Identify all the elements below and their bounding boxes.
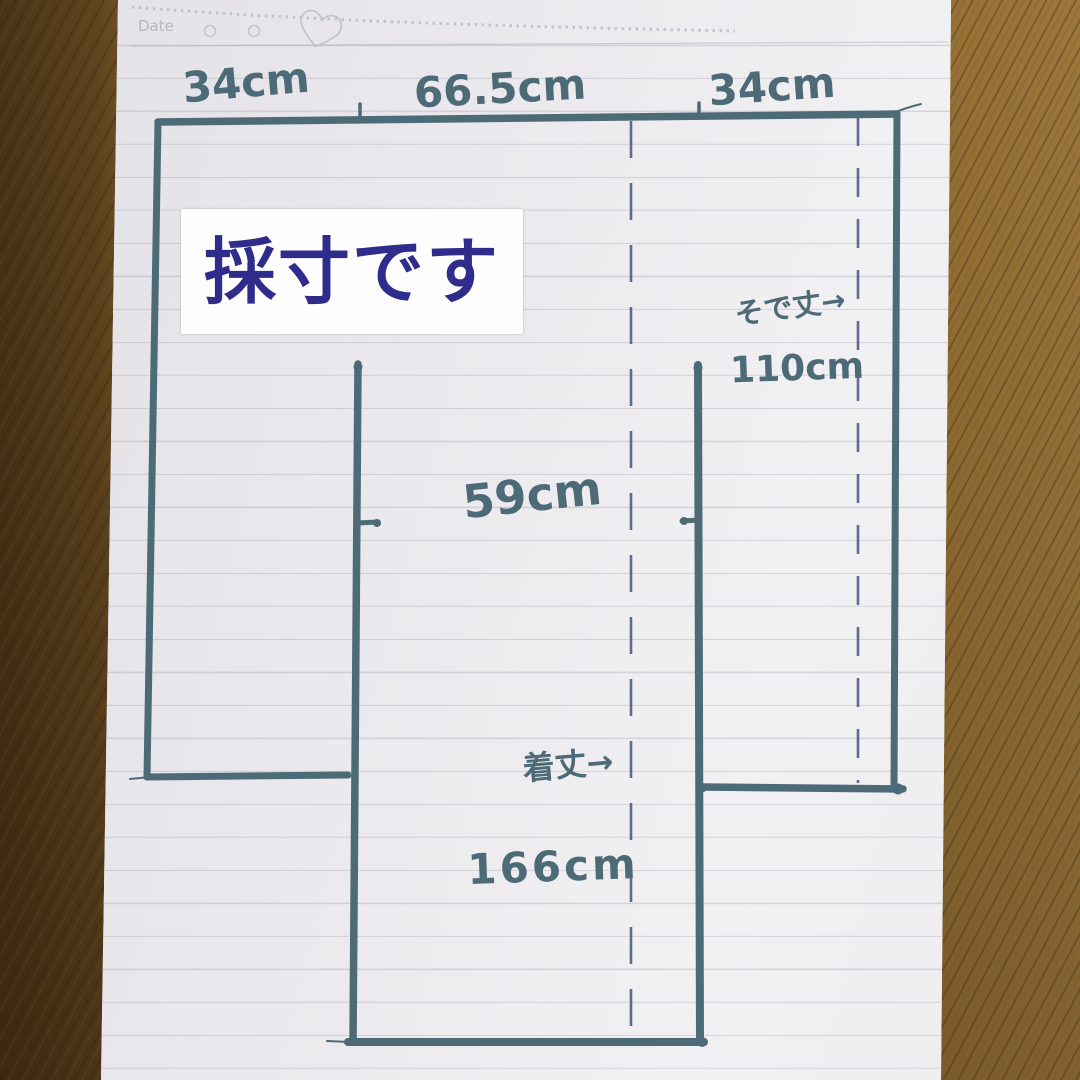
body-width-label: 59cm [460,461,604,529]
notebook-header-decoration [130,7,948,52]
garment-length-label: 着丈→ [520,742,615,788]
corner-stroke-tail [327,1041,350,1042]
chain-decoration-line [132,7,735,31]
kimono-body-right-edge [698,365,700,1041]
top-left-width-label: 34cm [181,53,312,113]
sleeve-length-label: そで丈→ [733,282,848,331]
kimono-right-sleeve-edge [894,114,897,789]
kimono-measurement-drawing: Date [0,0,1080,1080]
top-right-width-label: 34cm [707,58,837,116]
kimono-top-edge [158,114,897,122]
kimono-right-sleeve-bottom [704,787,903,789]
header-rule-line [130,42,948,46]
sleeve-length-value: 110cm [729,346,864,392]
ink-blobs [354,363,904,1048]
notebook-date-label: Date [138,17,174,35]
kimono-left-sleeve-bottom [147,775,348,777]
garment-length-value: 166cm [467,839,640,894]
caption-text: 採寸です [204,236,500,308]
kimono-body-left-edge [353,364,358,1042]
corner-stroke-tail [893,104,921,113]
kimono-left-sleeve-edge [147,122,158,777]
caption-overlay-box: 採寸です [181,209,523,334]
top-center-width-label: 66.5cm [413,60,588,118]
header-circle-icon [249,26,260,37]
header-circle-icon [205,26,216,37]
photo-of-measurement-sketch: Date [0,0,1080,1080]
